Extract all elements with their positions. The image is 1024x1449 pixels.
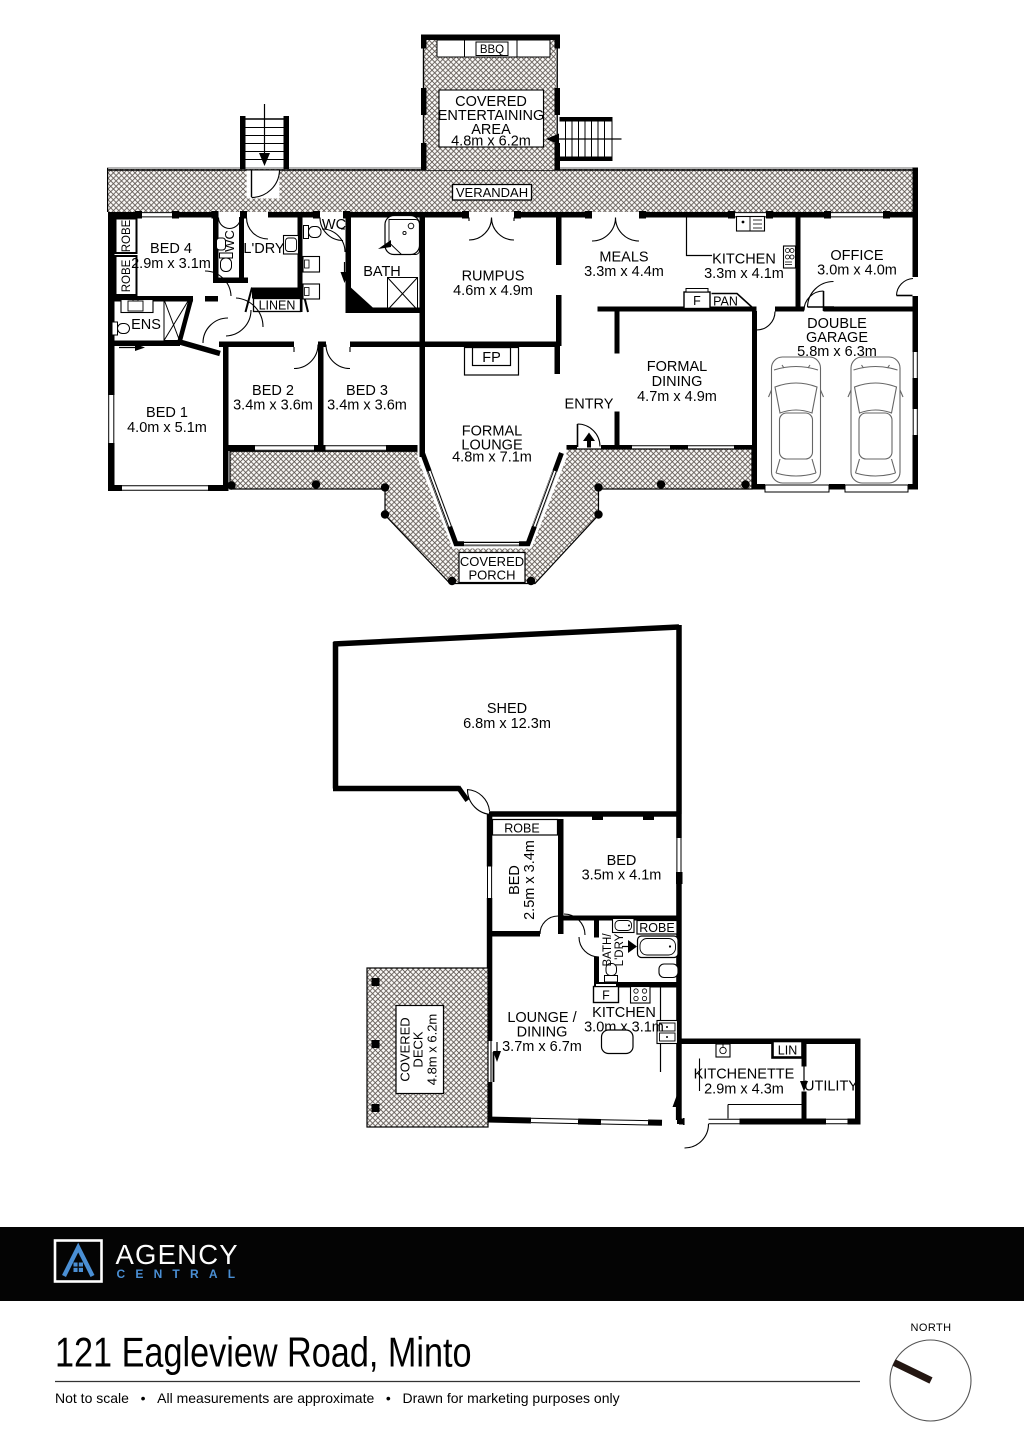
svg-text:3.7m x 6.7m: 3.7m x 6.7m: [502, 1039, 582, 1055]
svg-text:VERANDAH: VERANDAH: [456, 185, 528, 200]
svg-text:NORTH: NORTH: [911, 1322, 952, 1334]
svg-text:ROBE: ROBE: [504, 822, 539, 836]
svg-text:3.3m x 4.4m: 3.3m x 4.4m: [584, 264, 664, 280]
svg-text:3.0m x 4.0m: 3.0m x 4.0m: [817, 263, 897, 279]
svg-text:BATH: BATH: [363, 264, 401, 280]
svg-text:2.5m x 3.4m: 2.5m x 3.4m: [522, 840, 538, 920]
svg-text:BBQ: BBQ: [480, 44, 504, 56]
svg-text:2.9m x 4.3m: 2.9m x 4.3m: [704, 1082, 784, 1098]
svg-text:WC: WC: [222, 230, 237, 252]
svg-text:F: F: [693, 294, 701, 308]
svg-text:6.8m x 12.3m: 6.8m x 12.3m: [463, 716, 551, 732]
svg-text:L'DRY: L'DRY: [243, 241, 285, 257]
svg-text:121 Eagleview Road, Minto: 121 Eagleview Road, Minto: [55, 1329, 472, 1376]
svg-text:ROBE: ROBE: [639, 921, 674, 935]
svg-text:LINEN: LINEN: [259, 299, 296, 313]
svg-text:4.7m x 4.9m: 4.7m x 4.9m: [637, 389, 717, 405]
svg-text:BED 1: BED 1: [146, 405, 188, 421]
svg-text:3.3m x 4.1m: 3.3m x 4.1m: [704, 266, 784, 282]
svg-text:CENTRAL: CENTRAL: [117, 1267, 246, 1281]
svg-text:DINING: DINING: [652, 374, 703, 390]
svg-text:3.4m x 3.6m: 3.4m x 3.6m: [327, 398, 407, 414]
svg-text:Not to scale • All measure: Not to scale • All measurements are appr…: [55, 1390, 620, 1406]
svg-text:DECK: DECK: [411, 1031, 426, 1067]
svg-text:SHED: SHED: [487, 701, 527, 717]
svg-text:FP: FP: [482, 350, 501, 366]
svg-text:BED: BED: [507, 865, 523, 895]
svg-text:3.5m x 4.1m: 3.5m x 4.1m: [582, 868, 662, 884]
svg-text:4.6m x 4.9m: 4.6m x 4.9m: [453, 283, 533, 299]
svg-text:PORCH: PORCH: [469, 568, 516, 583]
svg-text:AGENCY: AGENCY: [116, 1239, 239, 1270]
svg-text:BATH/: BATH/: [602, 933, 614, 967]
svg-text:LIN: LIN: [778, 1044, 797, 1058]
svg-text:2.9m x 3.1m: 2.9m x 3.1m: [131, 256, 211, 272]
svg-text:ROBE: ROBE: [121, 219, 133, 252]
svg-text:L'DRY: L'DRY: [614, 933, 626, 966]
svg-text:4.8m x 7.1m: 4.8m x 7.1m: [452, 450, 532, 466]
svg-text:KITCHENETTE: KITCHENETTE: [694, 1067, 795, 1083]
svg-text:WC: WC: [322, 217, 346, 233]
svg-text:FORMAL: FORMAL: [647, 359, 707, 375]
svg-text:ENTRY: ENTRY: [565, 397, 614, 413]
svg-text:4.8m x 6.2m: 4.8m x 6.2m: [451, 134, 531, 150]
svg-text:ENS: ENS: [131, 317, 161, 333]
svg-text:PAN: PAN: [713, 295, 738, 309]
svg-text:4.8m x 6.2m: 4.8m x 6.2m: [425, 1014, 440, 1086]
svg-text:F: F: [602, 989, 610, 1003]
svg-text:UTILITY: UTILITY: [804, 1079, 858, 1095]
svg-text:BED 4: BED 4: [150, 241, 192, 257]
svg-text:4.0m x 5.1m: 4.0m x 5.1m: [127, 420, 207, 436]
svg-text:3.4m x 3.6m: 3.4m x 3.6m: [233, 398, 313, 414]
